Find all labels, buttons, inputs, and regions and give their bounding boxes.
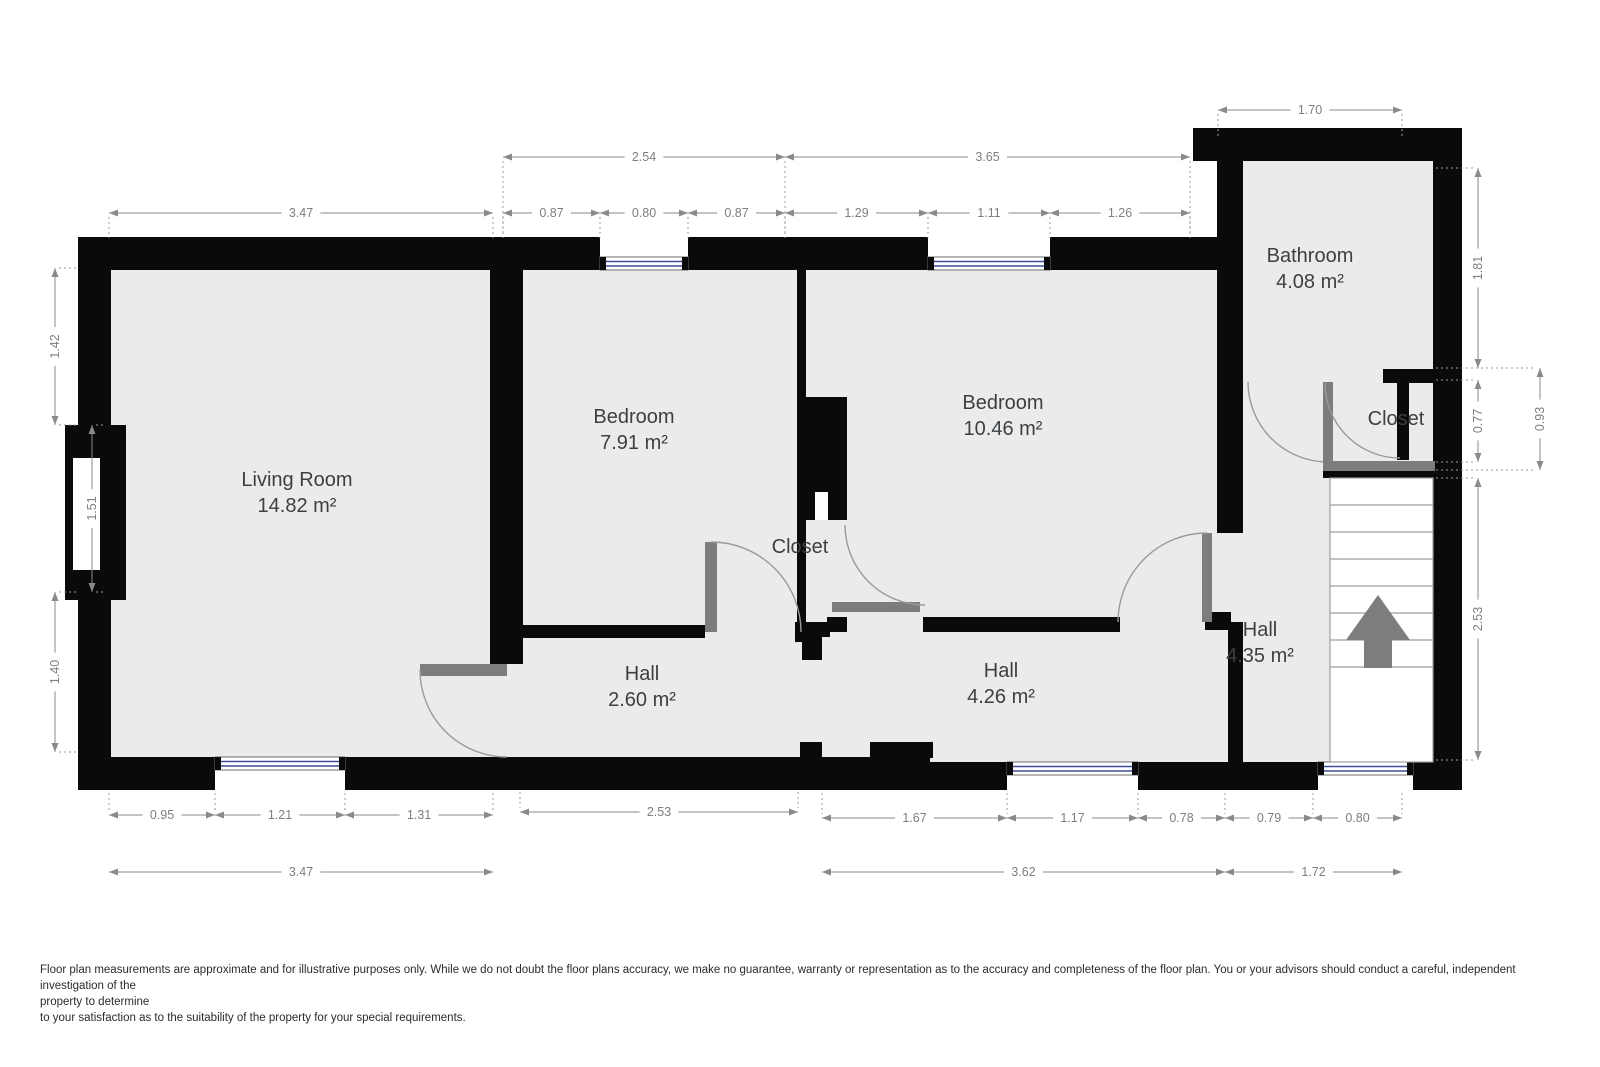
- dimension-value: 1.11: [977, 206, 1000, 220]
- dimension-value: 2.53: [1471, 607, 1485, 631]
- disclaimer-text: Floor plan measurements are approximate …: [40, 963, 1560, 1026]
- room-label-bedroom1: Bedroom: [593, 406, 674, 428]
- dimension-value: 1.67: [902, 811, 926, 825]
- dimension-value: 0.80: [1345, 811, 1369, 825]
- wall-pillar: [800, 742, 822, 762]
- dimension-value: 0.80: [632, 206, 656, 220]
- dimension-value: 1.70: [1298, 103, 1322, 117]
- dimension-bottom-7: 0.79: [1225, 793, 1313, 826]
- dimension-bottom-0: 0.95: [109, 793, 215, 823]
- room-label-hall-2: Hall: [984, 660, 1018, 682]
- disclaimer-line-3: to your satisfaction as to the suitabili…: [40, 1011, 1560, 1027]
- wall-stairs-top: [1323, 470, 1433, 478]
- wall-bedroom2-bottom-b: [923, 617, 1120, 632]
- dimension-left-0: 1.42: [48, 268, 78, 425]
- dimension-value: 0.87: [724, 206, 748, 220]
- room-area-bathroom: 4.08 m²: [1276, 271, 1344, 293]
- dimension-value: 1.21: [268, 808, 292, 822]
- room-area-hall-2: 4.26 m²: [967, 686, 1035, 708]
- room-area-living-room: 14.82 m²: [258, 495, 337, 517]
- room-label-bathroom: Bathroom: [1267, 245, 1354, 267]
- dimension-value: 2.54: [632, 150, 656, 164]
- wall-step-notch: [870, 742, 933, 758]
- dimension-value: 3.62: [1011, 865, 1035, 879]
- dimension-value: 1.17: [1060, 811, 1084, 825]
- dimension-value: 1.40: [48, 660, 62, 684]
- dimension-top-5: 0.80: [600, 206, 688, 239]
- window-hall: [1007, 762, 1138, 790]
- door-leaf-bedroom2-east: [1202, 533, 1212, 622]
- dimension-bottom-11: 1.72: [1225, 865, 1402, 880]
- floor-plan-page: 1.702.543.653.470.870.800.871.291.111.26…: [0, 0, 1600, 1067]
- window-stair-hall: [1318, 762, 1413, 790]
- room-area-bedroom2: 10.46 m²: [964, 418, 1043, 440]
- dimension-top-4: 0.87: [503, 206, 600, 239]
- door-leaf-bedroom1: [705, 542, 717, 632]
- dimension-top-1: 2.54: [503, 150, 785, 236]
- dimension-value: 1.42: [48, 334, 62, 358]
- window-living-room: [215, 757, 345, 790]
- wall-right: [1433, 161, 1462, 790]
- dimension-value: 2.53: [647, 805, 671, 819]
- dimension-top-7: 1.29: [785, 206, 928, 239]
- disclaimer-line-2: property to determine: [40, 995, 1560, 1011]
- room-area-bedroom1: 7.91 m²: [600, 432, 668, 454]
- dimension-bottom-1: 1.21: [215, 793, 345, 823]
- room-label-living-room: Living Room: [241, 469, 352, 491]
- dimension-value: 0.79: [1257, 811, 1281, 825]
- dimension-bottom-4: 1.67: [822, 793, 1007, 826]
- wall-bathroom-bottom: [1383, 369, 1435, 383]
- dimension-value: 3.47: [289, 206, 313, 220]
- door-leaf-bathroom: [1323, 382, 1333, 462]
- dimension-value: 1.31: [407, 808, 431, 822]
- door-leaf-living-hall: [420, 664, 507, 676]
- dimension-bottom-9: 3.47: [109, 865, 493, 880]
- dimension-top-6: 0.87: [688, 206, 785, 239]
- dimension-value: 1.72: [1301, 865, 1325, 879]
- window-bedroom1: [600, 237, 688, 270]
- dimension-value: 1.29: [844, 206, 868, 220]
- wall-foot-a: [795, 622, 822, 642]
- wall-bathroom-left: [1217, 161, 1243, 533]
- dimension-bottom-8: 0.80: [1313, 793, 1402, 826]
- dimension-value: 0.78: [1169, 811, 1193, 825]
- dimension-value: 0.95: [150, 808, 174, 822]
- room-label-closet-middle: Closet: [772, 536, 829, 558]
- dimension-value: 0.87: [539, 206, 563, 220]
- staircase: [1330, 478, 1433, 762]
- room-label-hall-1: Hall: [625, 663, 659, 685]
- dimension-top-3: 3.47: [109, 206, 493, 239]
- room-area-hall-1: 2.60 m²: [608, 689, 676, 711]
- dimension-top-8: 1.11: [928, 206, 1050, 239]
- wall-bedroom1-bottom: [513, 625, 705, 638]
- dimension-value: 0.93: [1533, 407, 1547, 431]
- dimension-top-2: 3.65: [785, 150, 1190, 236]
- wall-hall-divider-lower: [1228, 622, 1243, 762]
- dimension-value: 1.26: [1108, 206, 1132, 220]
- closet-notch: [815, 492, 828, 520]
- dimension-bottom-5: 1.17: [1007, 793, 1138, 826]
- wall-foot-b: [802, 642, 822, 660]
- closet-shelf: [1323, 461, 1435, 471]
- wall-living-bedroom: [490, 270, 523, 664]
- dimension-value: 3.47: [289, 865, 313, 879]
- room-label-bedroom2: Bedroom: [962, 392, 1043, 414]
- dimension-bottom-2: 1.31: [345, 793, 493, 823]
- window-bedroom2: [928, 237, 1050, 270]
- dimension-value: 1.81: [1471, 256, 1485, 280]
- room-area-hall-3: 4.35 m²: [1226, 645, 1294, 667]
- dimension-value: 0.77: [1471, 409, 1485, 433]
- wall-bedroom2-bottom-a: [827, 617, 847, 632]
- floor-plan-drawing: 1.702.543.653.470.870.800.871.291.111.26…: [0, 0, 1600, 1067]
- wall-bathroom-top: [1193, 128, 1462, 161]
- dimension-value: 3.65: [975, 150, 999, 164]
- dimension-bottom-10: 3.62: [822, 865, 1225, 880]
- room-label-hall-3: Hall: [1243, 619, 1277, 641]
- dimension-left-2: 1.40: [48, 592, 78, 752]
- dimension-bottom-6: 0.78: [1138, 793, 1225, 826]
- dimension-value: 1.51: [85, 496, 99, 520]
- dimension-top-9: 1.26: [1050, 206, 1190, 239]
- disclaimer-line-1: Floor plan measurements are approximate …: [40, 963, 1560, 995]
- dimension-bottom-3: 2.53: [520, 792, 798, 820]
- room-label-closet-right: Closet: [1368, 408, 1425, 430]
